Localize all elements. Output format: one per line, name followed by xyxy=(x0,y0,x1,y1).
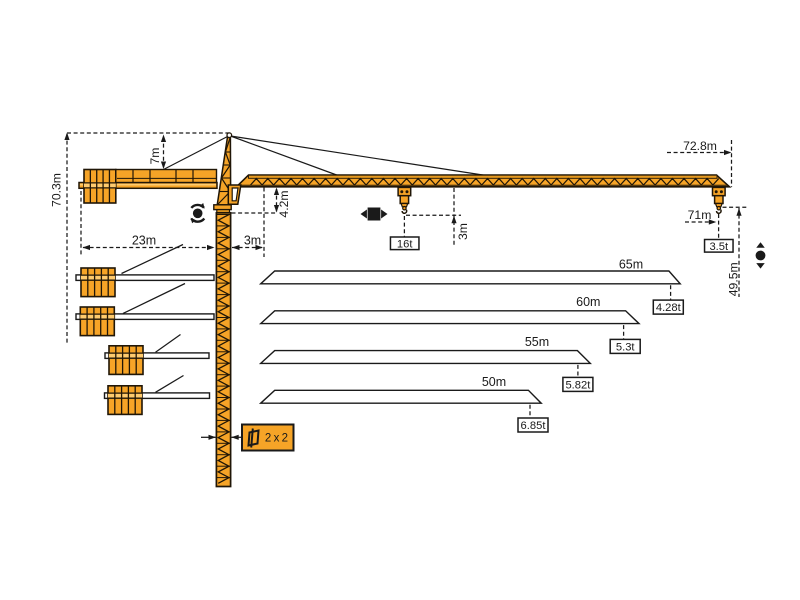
svg-text:49.5m: 49.5m xyxy=(726,262,740,296)
svg-text:70.3m: 70.3m xyxy=(50,173,64,207)
svg-text:6.85t: 6.85t xyxy=(521,420,547,432)
svg-text:55m: 55m xyxy=(525,335,549,349)
svg-text:4.28t: 4.28t xyxy=(656,302,682,314)
svg-text:65m: 65m xyxy=(619,258,643,272)
svg-text:16t: 16t xyxy=(397,238,413,250)
svg-text:23m: 23m xyxy=(132,234,156,248)
svg-text:2 x 2: 2 x 2 xyxy=(265,433,288,445)
svg-text:72.8m: 72.8m xyxy=(683,139,717,153)
svg-text:60m: 60m xyxy=(576,295,600,309)
svg-text:50m: 50m xyxy=(482,375,506,389)
svg-text:7m: 7m xyxy=(148,148,162,165)
svg-text:5.3t: 5.3t xyxy=(616,341,636,353)
svg-text:3m: 3m xyxy=(456,223,470,240)
svg-text:3m: 3m xyxy=(244,234,261,248)
svg-text:5.82t: 5.82t xyxy=(565,379,591,391)
svg-text:71m: 71m xyxy=(688,208,712,222)
svg-text:3.5t: 3.5t xyxy=(709,241,729,253)
svg-text:4.2m: 4.2m xyxy=(277,190,291,217)
